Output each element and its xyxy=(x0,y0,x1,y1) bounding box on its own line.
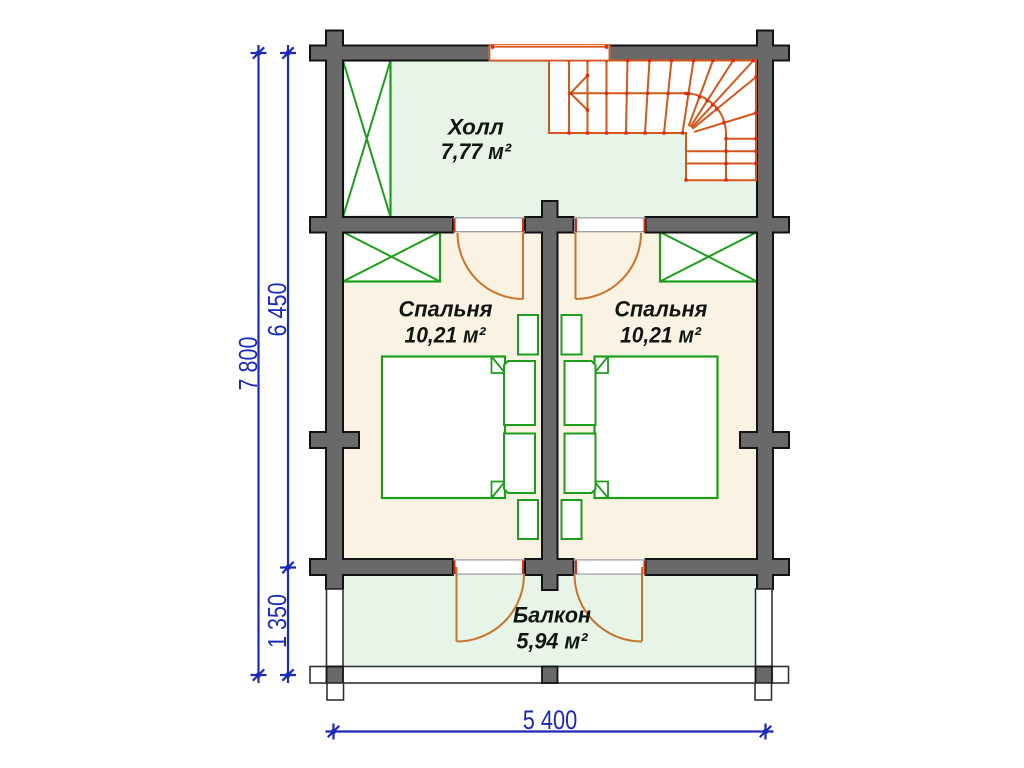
svg-text:Спальня: Спальня xyxy=(614,296,707,321)
svg-text:6 450: 6 450 xyxy=(262,283,292,337)
svg-text:Спальня: Спальня xyxy=(399,296,493,321)
svg-text:7 800: 7 800 xyxy=(233,337,263,391)
svg-text:5 400: 5 400 xyxy=(523,705,578,735)
svg-text:10,21 м²: 10,21 м² xyxy=(405,323,487,348)
svg-text:Балкон: Балкон xyxy=(513,603,591,628)
svg-text:10,21 м²: 10,21 м² xyxy=(620,323,702,348)
svg-text:Холл: Холл xyxy=(446,114,504,139)
svg-text:7,77 м²: 7,77 м² xyxy=(441,139,512,164)
svg-text:1 350: 1 350 xyxy=(262,594,292,648)
svg-text:5,94 м²: 5,94 м² xyxy=(517,629,589,654)
